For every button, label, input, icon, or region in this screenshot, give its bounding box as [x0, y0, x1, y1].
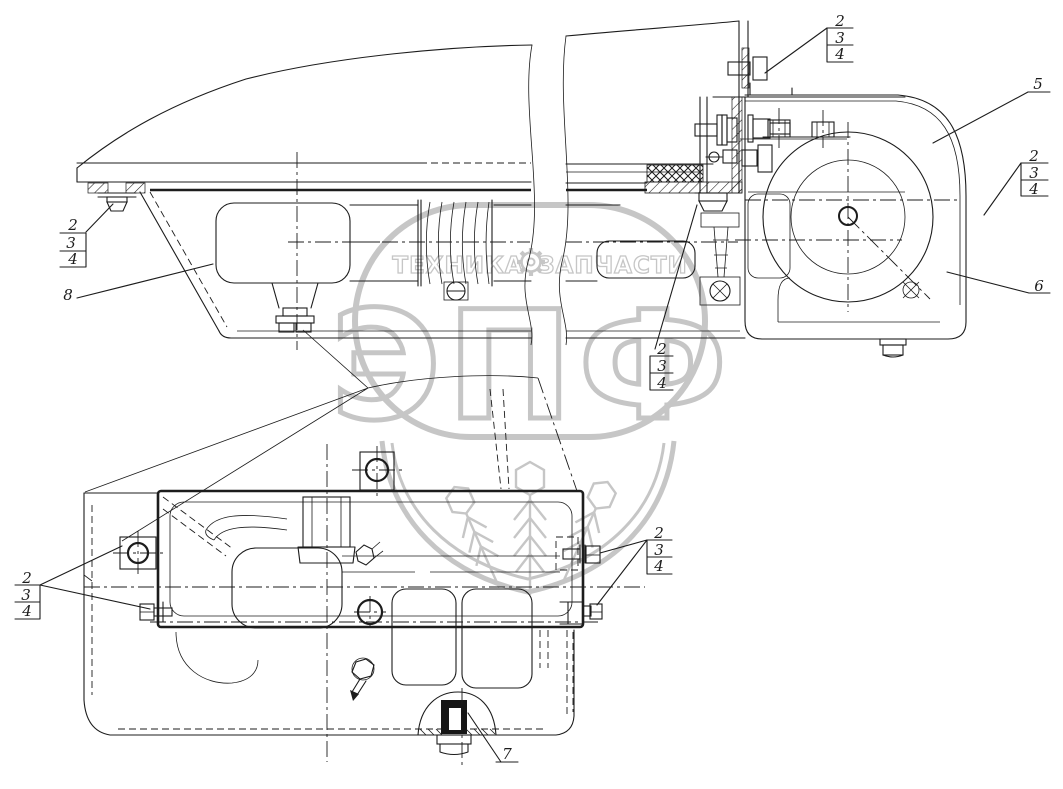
drain-cock-rear — [903, 282, 919, 298]
sender-hole — [354, 596, 386, 628]
plan-bracket-left — [113, 531, 163, 576]
drawing-canvas: ТЕХНИКА ЗАПЧАСТИ ЭПФ — [0, 0, 1063, 789]
callout-side-right-stack: 2 3 4 — [984, 147, 1048, 215]
suction-pipe — [206, 515, 287, 540]
callout-number: 4 — [67, 250, 78, 268]
fuel-tank-assembly-drawing: ТЕХНИКА ЗАПЧАСТИ ЭПФ — [0, 0, 1063, 789]
callout-side-top-stack: 2 3 4 — [765, 12, 853, 73]
front-mount-bolt — [98, 193, 136, 211]
watermark: ТЕХНИКА ЗАПЧАСТИ ЭПФ — [331, 205, 733, 595]
callout-item-6: 6 — [947, 272, 1050, 295]
callout-item-8: 8 — [63, 264, 213, 304]
callout-number: 2 — [656, 340, 667, 358]
plan-bolt-left — [140, 602, 172, 622]
watermark-brand-right: ЗАПЧАСТИ — [538, 253, 688, 279]
callout-number: 4 — [1028, 180, 1039, 198]
drain-plug — [418, 692, 496, 755]
platform — [77, 163, 713, 193]
callout-number: 7 — [502, 745, 512, 763]
epf-logo-text: ЭПФ — [331, 280, 733, 454]
rear-clamp-brackets — [740, 108, 850, 148]
callout-number: 4 — [21, 602, 32, 620]
callout-side-left-stack: 2 3 4 — [60, 204, 113, 268]
callout-number: 4 — [653, 557, 664, 575]
callout-number: 8 — [63, 286, 73, 304]
callout-number: 4 — [834, 45, 845, 63]
callout-number: 4 — [656, 374, 667, 392]
callout-number: 6 — [1034, 277, 1044, 295]
callout-number: 2 — [834, 12, 845, 30]
plan-tank-top — [158, 491, 583, 627]
rear-bulkhead — [695, 97, 905, 193]
callout-item-5: 5 — [933, 75, 1050, 143]
gear-icon — [517, 248, 545, 276]
insulation-blocks — [645, 165, 742, 193]
baffle-plates — [342, 556, 573, 712]
pump-housing — [176, 548, 342, 683]
plan-bracket-top — [352, 446, 402, 497]
wheat-ears-icon — [443, 462, 620, 595]
callout-number: 2 — [1028, 147, 1039, 165]
watermark-brand-left: ТЕХНИКА — [392, 253, 523, 279]
top-clamp-bolt — [728, 48, 792, 95]
plan-centerlines — [84, 444, 645, 768]
callout-number: 5 — [1033, 75, 1043, 93]
callout-number: 2 — [21, 569, 32, 587]
rear-drain-bolt — [880, 339, 906, 357]
angle-fitting — [356, 542, 383, 565]
drain-valve — [350, 658, 374, 701]
callout-number: 2 — [67, 216, 78, 234]
callout-number: 2 — [653, 524, 664, 542]
callout-number: 3 — [657, 357, 667, 375]
filler-neck — [298, 497, 355, 563]
